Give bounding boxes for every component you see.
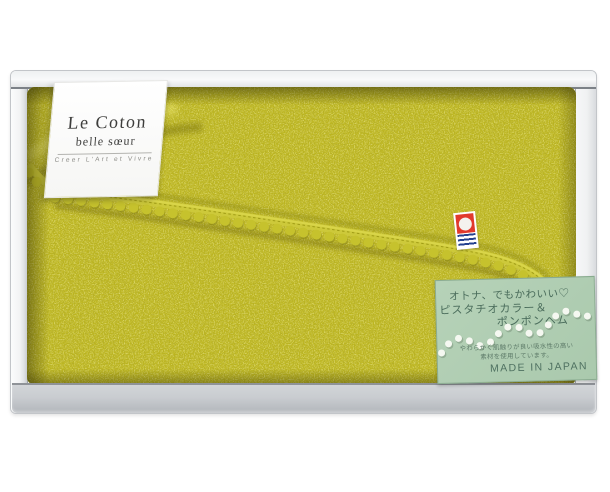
made-in-japan-label: MADE IN JAPAN [490, 360, 588, 375]
info-tag: オトナ、でもかわいい♡ ピスタチオカラー＆ ポンポンヘム やわらかく肌触りが良い… [435, 276, 598, 384]
product-photo: Le Coton belle sœur Creer L'Art et Vivre… [0, 0, 610, 492]
tag-feature-line2: ポンポンヘム [497, 312, 569, 330]
imabari-red-field [455, 213, 475, 234]
brand-tagline: Creer L'Art et Vivre [48, 155, 161, 164]
imabari-sun-circle [458, 216, 472, 230]
brand-title: Le Coton [50, 111, 164, 134]
imabari-wave-stripes [457, 233, 476, 247]
box-left-wall [11, 71, 28, 413]
imabari-towel-logo [453, 211, 479, 250]
brand-card: Le Coton belle sœur Creer L'Art et Vivre [44, 80, 168, 198]
brand-subtitle: belle sœur [49, 133, 162, 150]
box-bottom-wall [12, 383, 595, 413]
